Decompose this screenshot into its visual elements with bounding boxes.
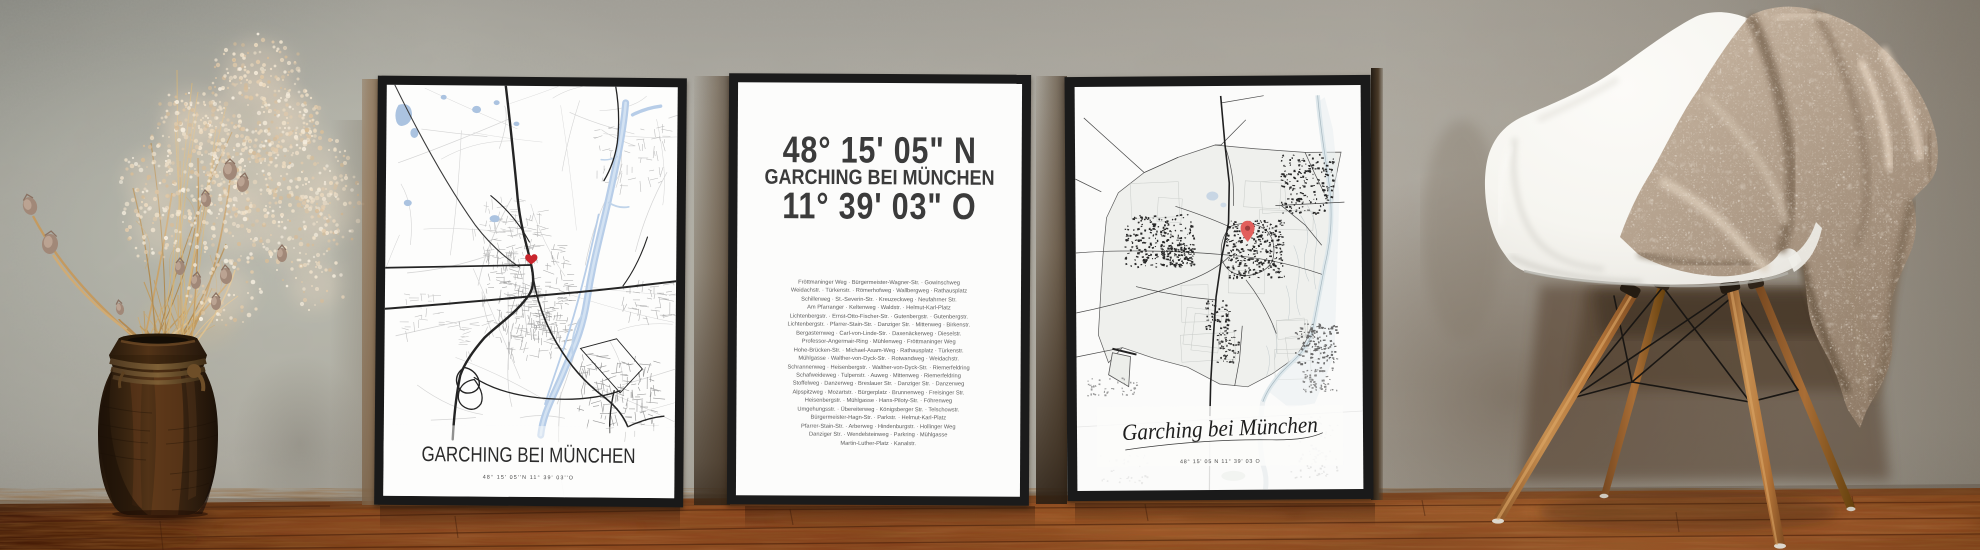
svg-text:48° 15' 05''N 11° 39' 03''O: 48° 15' 05''N 11° 39' 03''O <box>483 475 574 482</box>
svg-text:GARCHING BEI MÜNCHEN: GARCHING BEI MÜNCHEN <box>421 443 635 468</box>
svg-text:48° 15' 05 N 11° 39' 03 O: 48° 15' 05 N 11° 39' 03 O <box>1180 459 1261 466</box>
